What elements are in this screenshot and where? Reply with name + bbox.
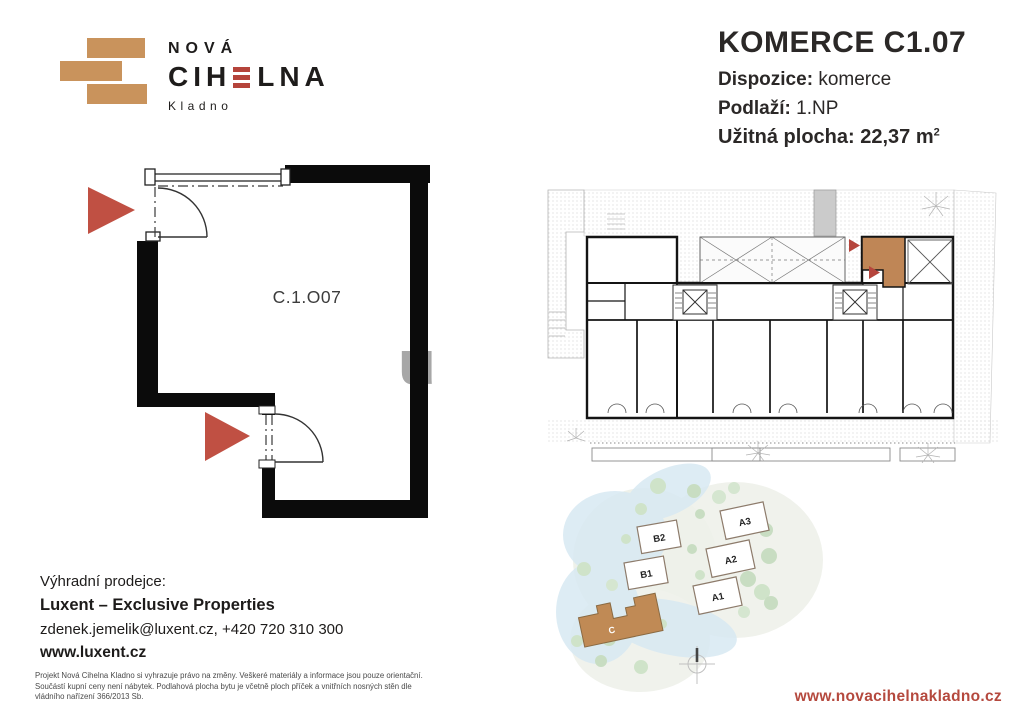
spec-podlazi-value: 1.NP [796, 98, 838, 119]
spec-plocha: Užitná plocha: 22,37 m2 [718, 126, 940, 149]
disclaimer-text: Projekt Nová Cihelna Kladno si vyhrazuje… [35, 671, 429, 703]
unit-label: C.1.O07 [273, 287, 342, 307]
site-plan: B2 B1 A3 A2 A1 C [550, 462, 895, 704]
walls [137, 165, 430, 518]
seller-name: Luxent – Exclusive Properties [40, 596, 343, 615]
logo-text: NOVÁ CIH LNA Kladno [168, 38, 330, 113]
unit-floor-plan-svg: u [80, 140, 500, 560]
spec-podlazi: Podlaží: 1.NP [718, 98, 838, 120]
seller-contact[interactable]: zdenek.jemelik@luxent.cz, +420 720 310 3… [40, 621, 343, 638]
svg-text:B2: B2 [652, 532, 666, 545]
spec-dispozice-label: Dispozice: [718, 69, 813, 90]
building-floor-plan [545, 185, 1000, 463]
logo: NOVÁ CIH LNA Kladno [60, 38, 330, 113]
logo-line-nova: NOVÁ [168, 40, 330, 58]
logo-cihelna-left: CIH [168, 61, 231, 93]
spec-dispozice: Dispozice: komerce [718, 69, 891, 91]
unit-floor-plan: u [80, 140, 500, 560]
brick-shape [87, 38, 145, 58]
brick-shape [60, 61, 122, 81]
seller-contact-block: Výhradní prodejce: Luxent – Exclusive Pr… [40, 573, 343, 662]
spec-podlazi-label: Podlaží: [718, 98, 791, 119]
brick-logo-icon [60, 38, 150, 106]
brick-shape [87, 84, 147, 104]
logo-cihelna-right: LNA [257, 61, 330, 93]
seller-website-link[interactable]: www.luxent.cz [40, 644, 343, 662]
building-floor-plan-svg [545, 185, 1000, 463]
project-website-link[interactable]: www.novacihelnakladno.cz [795, 688, 1002, 706]
spec-plocha-sup: 2 [934, 126, 940, 138]
door-swings [158, 188, 323, 462]
spec-plocha-label: Užitná plocha: [718, 126, 855, 148]
logo-city: Kladno [168, 99, 330, 113]
seller-label: Výhradní prodejce: [40, 573, 343, 590]
site-plan-svg: B2 B1 A3 A2 A1 C [550, 462, 895, 704]
logo-e-bars-icon [233, 67, 250, 88]
spec-dispozice-value: komerce [818, 69, 891, 90]
canopy [700, 237, 845, 283]
spec-plocha-value: 22,37 m [860, 126, 933, 148]
terraces [590, 443, 955, 461]
page-title: KOMERCE C1.07 [718, 26, 966, 60]
gray-structure [814, 190, 836, 236]
window [145, 169, 290, 241]
entrance-arrow-icon [88, 187, 250, 461]
page: NOVÁ CIH LNA Kladno KOMERCE C1.07 Dispoz… [0, 0, 1024, 721]
logo-line-cihelna: CIH LNA [168, 61, 330, 93]
